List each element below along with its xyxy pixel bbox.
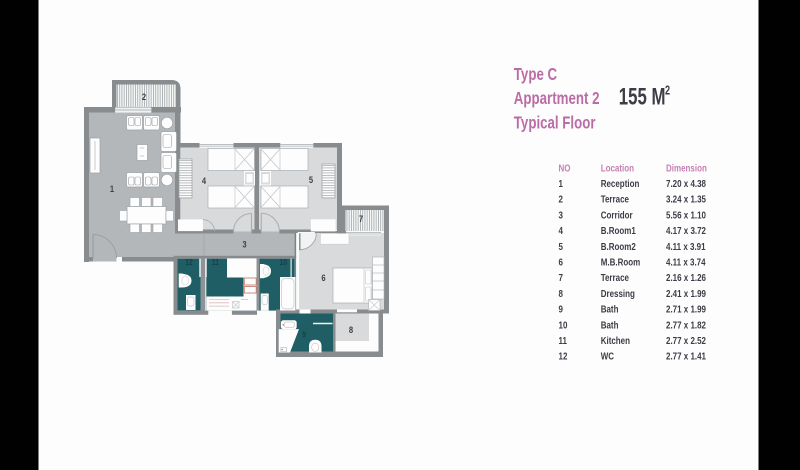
svg-text:155 M: 155 M xyxy=(619,83,666,110)
svg-text:Corridor: Corridor xyxy=(601,210,633,221)
svg-text:7: 7 xyxy=(359,213,363,224)
svg-text:Dimension: Dimension xyxy=(666,163,707,174)
svg-text:Dressing: Dressing xyxy=(601,288,635,299)
svg-text:NO: NO xyxy=(559,163,571,174)
svg-text:B.Room2: B.Room2 xyxy=(601,241,636,252)
svg-text:3: 3 xyxy=(242,239,246,250)
svg-text:7.20 x 4.38: 7.20 x 4.38 xyxy=(666,178,706,189)
svg-text:B.Room1: B.Room1 xyxy=(601,225,636,236)
svg-text:Bath: Bath xyxy=(601,319,619,330)
svg-text:4: 4 xyxy=(559,225,563,236)
svg-text:7: 7 xyxy=(559,272,563,283)
svg-text:Bath: Bath xyxy=(601,304,619,315)
svg-text:2: 2 xyxy=(559,194,563,205)
svg-text:Location: Location xyxy=(601,163,634,174)
svg-text:12: 12 xyxy=(185,257,193,267)
svg-text:8: 8 xyxy=(349,324,353,335)
svg-text:1: 1 xyxy=(110,183,114,194)
svg-text:Appartment 2: Appartment 2 xyxy=(514,89,600,108)
svg-text:5: 5 xyxy=(309,174,313,185)
svg-text:4.11 x 3.91: 4.11 x 3.91 xyxy=(666,241,706,252)
svg-text:2.77 x 2.52: 2.77 x 2.52 xyxy=(666,335,706,346)
svg-text:6: 6 xyxy=(321,272,325,283)
svg-text:8: 8 xyxy=(559,288,563,299)
svg-text:5.56 x 1.10: 5.56 x 1.10 xyxy=(666,210,706,221)
svg-text:4.17 x 3.72: 4.17 x 3.72 xyxy=(666,225,706,236)
svg-text:Typical Floor: Typical Floor xyxy=(514,114,596,133)
svg-text:2.41 x 1.99: 2.41 x 1.99 xyxy=(666,288,706,299)
svg-text:4: 4 xyxy=(202,175,206,186)
svg-text:2.77 x 1.82: 2.77 x 1.82 xyxy=(666,319,706,330)
svg-text:5: 5 xyxy=(559,241,563,252)
svg-text:1: 1 xyxy=(559,178,563,189)
svg-text:2.71 x 1.99: 2.71 x 1.99 xyxy=(666,304,706,315)
svg-text:WC: WC xyxy=(601,351,615,362)
svg-text:12: 12 xyxy=(559,351,568,362)
svg-text:2: 2 xyxy=(665,84,670,98)
svg-text:11: 11 xyxy=(212,257,220,267)
svg-text:Terrace: Terrace xyxy=(601,272,629,283)
svg-text:10: 10 xyxy=(559,319,568,330)
svg-text:2.16 x 1.26: 2.16 x 1.26 xyxy=(666,272,706,283)
svg-text:M.B.Room: M.B.Room xyxy=(601,257,641,268)
svg-text:9: 9 xyxy=(559,304,563,315)
svg-text:9: 9 xyxy=(302,330,306,340)
svg-text:Type C: Type C xyxy=(514,65,557,84)
svg-text:Kitchen: Kitchen xyxy=(601,335,630,346)
svg-text:Reception: Reception xyxy=(601,178,640,189)
svg-text:11: 11 xyxy=(559,335,567,346)
svg-text:2.77 x 1.41: 2.77 x 1.41 xyxy=(666,351,706,362)
svg-text:2: 2 xyxy=(142,91,146,102)
svg-text:10: 10 xyxy=(280,257,288,267)
svg-text:3.24 x 1.35: 3.24 x 1.35 xyxy=(666,194,706,205)
svg-text:6: 6 xyxy=(559,257,563,268)
svg-text:3: 3 xyxy=(559,210,563,221)
svg-text:Terrace: Terrace xyxy=(601,194,629,205)
svg-text:4.11 x 3.74: 4.11 x 3.74 xyxy=(666,257,706,268)
